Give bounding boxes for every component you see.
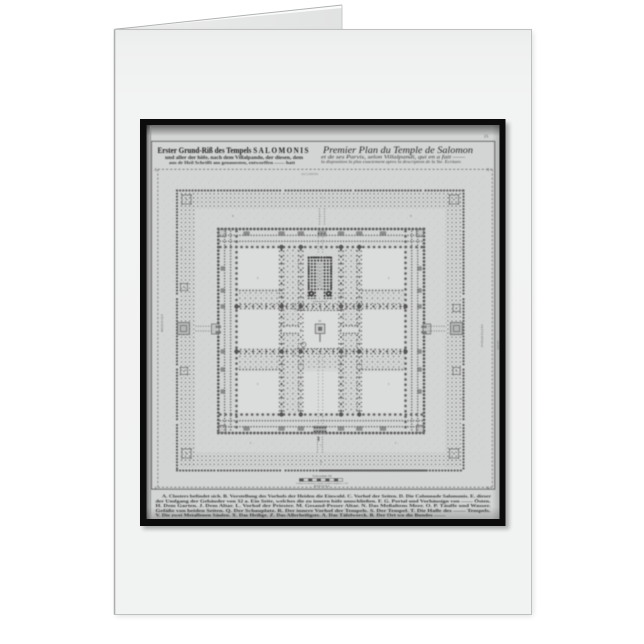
svg-text:OCCIDENS: OCCIDENS: [301, 173, 318, 176]
svg-text:D: D: [181, 398, 183, 401]
svg-text:D: D: [461, 398, 463, 401]
svg-text:A: A: [487, 487, 490, 491]
svg-text:X: X: [322, 415, 324, 418]
svg-text:B: B: [410, 215, 412, 218]
svg-text:D: D: [461, 248, 463, 251]
svg-text:la disposition la plus exactem: la disposition la plus exactement apres …: [321, 160, 462, 164]
svg-text:MERIDIES: MERIDIES: [160, 314, 164, 332]
svg-text:B: B: [232, 215, 234, 218]
svg-text:C: C: [320, 215, 322, 218]
svg-text:MENSURA: MENSURA: [314, 485, 330, 488]
svg-text:23.: 23.: [484, 133, 489, 138]
svg-text:E: E: [388, 383, 390, 386]
svg-text:E: E: [388, 277, 390, 280]
svg-text:M: M: [319, 319, 322, 323]
svg-text:L: L: [342, 314, 344, 317]
svg-text:Premier Plan du Temple de Salo: Premier Plan du Temple de Salomon: [322, 145, 474, 155]
svg-text:A: A: [487, 168, 490, 172]
svg-text:A: A: [154, 168, 157, 172]
svg-text:V. Die zwei Metallenen Säulen.: V. Die zwei Metallenen Säulen. X. Das He…: [156, 513, 446, 518]
svg-text:E: E: [257, 383, 259, 386]
svg-text:Erster Grund-Riß des Tempels S: Erster Grund-Riß des Tempels S A L O M O…: [158, 145, 309, 155]
svg-text:Scala pedum 100: Scala pedum 100: [312, 475, 332, 478]
svg-text:ORIENS: ORIENS: [496, 340, 499, 350]
svg-text:A: A: [154, 487, 157, 491]
svg-text:aus dr Heil Schrifft am genaue: aus dr Heil Schrifft am genauesten, entw…: [169, 160, 296, 165]
svg-text:E: E: [257, 277, 259, 280]
svg-text:SEPTENTRIO: SEPTENTRIO: [480, 324, 484, 347]
svg-text:C: C: [320, 444, 322, 447]
svg-text:D: D: [181, 248, 183, 251]
svg-text:L: L: [298, 314, 300, 317]
